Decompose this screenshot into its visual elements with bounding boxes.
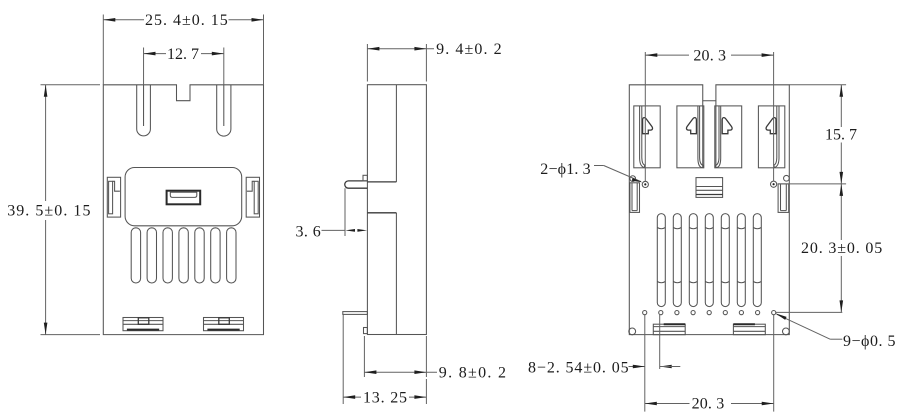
svg-text:9−ϕ0. 5: 9−ϕ0. 5 bbox=[843, 333, 896, 350]
svg-text:15. 7: 15. 7 bbox=[825, 127, 857, 144]
svg-text:8−2. 54±0. 05: 8−2. 54±0. 05 bbox=[528, 360, 630, 377]
svg-text:9. 4±0. 2: 9. 4±0. 2 bbox=[436, 41, 503, 58]
svg-text:20. 3±0. 05: 20. 3±0. 05 bbox=[801, 240, 883, 257]
svg-text:3. 6: 3. 6 bbox=[296, 223, 322, 240]
svg-text:39. 5±0. 15: 39. 5±0. 15 bbox=[7, 203, 91, 220]
svg-text:12. 7: 12. 7 bbox=[167, 46, 199, 63]
svg-text:2−ϕ1. 3: 2−ϕ1. 3 bbox=[540, 161, 591, 178]
svg-text:13. 25: 13. 25 bbox=[363, 389, 408, 406]
svg-text:20. 3: 20. 3 bbox=[693, 47, 726, 64]
svg-text:25. 4±0. 15: 25. 4±0. 15 bbox=[145, 12, 229, 29]
svg-text:9. 8±0. 2: 9. 8±0. 2 bbox=[439, 365, 507, 382]
svg-text:20. 3: 20. 3 bbox=[692, 396, 725, 413]
